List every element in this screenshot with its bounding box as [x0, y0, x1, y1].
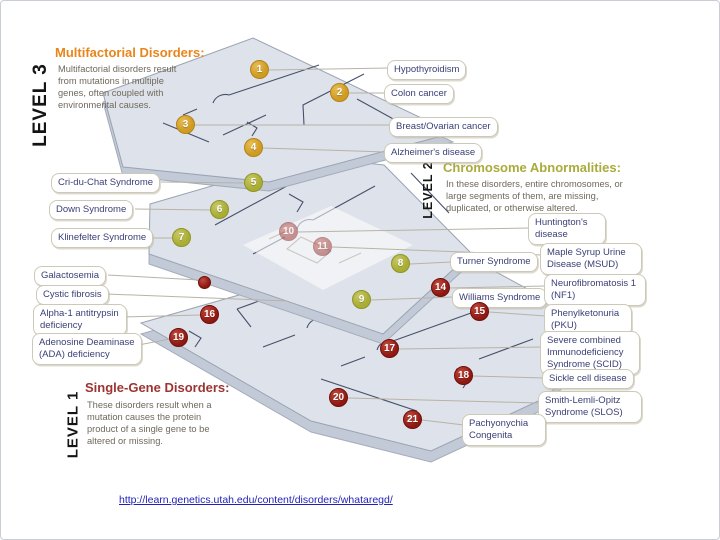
- label-nf1: Neurofibromatosis 1 (NF1): [544, 274, 646, 306]
- marker-18: 18: [454, 366, 473, 385]
- level3-vertical-label: LEVEL 3: [30, 45, 52, 165]
- label-cri-du-chat-syndrome: Cri-du-Chat Syndrome: [51, 173, 160, 193]
- label-alzheimers-disease: Alzheimer's disease: [384, 143, 482, 163]
- marker-14: 14: [431, 278, 450, 297]
- label-colon-cancer: Colon cancer: [384, 84, 454, 104]
- marker-15: 15: [470, 302, 489, 321]
- label-ada-deficiency: Adenosine Deaminase (ADA) deficiency: [32, 333, 142, 365]
- level3-heading: Multifactorial Disorders:: [55, 45, 205, 60]
- marker-3: 3: [176, 115, 195, 134]
- marker-8: 8: [391, 254, 410, 273]
- label-galactosemia: Galactosemia: [34, 266, 106, 286]
- marker-10: 10: [279, 222, 298, 241]
- level2-description: In these disorders, entire chromosomes, …: [446, 178, 644, 214]
- marker-partial: [198, 276, 211, 289]
- label-slos: Smith-Lemli-Opitz Syndrome (SLOS): [538, 391, 642, 423]
- label-alpha1-antitrypsin-deficiency: Alpha-1 antitrypsin deficiency: [33, 304, 127, 336]
- marker-9: 9: [352, 290, 371, 309]
- level1-heading: Single-Gene Disorders:: [85, 380, 229, 395]
- label-cystic-fibrosis: Cystic fibrosis: [36, 285, 109, 305]
- label-breast-ovarian-cancer: Breast/Ovarian cancer: [389, 117, 498, 137]
- level1-description: These disorders result when a mutation c…: [87, 399, 225, 447]
- label-sickle-cell-disease: Sickle cell disease: [542, 369, 634, 389]
- label-pachyonychia-congenita: Pachyonychia Congenita: [462, 414, 546, 446]
- label-huntingtons-disease: Huntington's disease: [528, 213, 606, 245]
- marker-21: 21: [403, 410, 422, 429]
- marker-19: 19: [169, 328, 188, 347]
- marker-11: 11: [313, 237, 332, 256]
- marker-6: 6: [210, 200, 229, 219]
- label-hypothyroidism: Hypothyroidism: [387, 60, 466, 80]
- marker-5: 5: [244, 173, 263, 192]
- label-msud: Maple Syrup Urine Disease (MSUD): [540, 243, 642, 275]
- label-klinefelter-syndrome: Klinefelter Syndrome: [51, 228, 153, 248]
- marker-7: 7: [172, 228, 191, 247]
- label-turner-syndrome: Turner Syndrome: [450, 252, 538, 272]
- marker-4: 4: [244, 138, 263, 157]
- marker-20: 20: [329, 388, 348, 407]
- level3-description: Multifactorial disorders result from mut…: [58, 63, 186, 111]
- level1-vertical-label: LEVEL 1: [65, 370, 82, 480]
- genetic-disorders-diagram: LEVEL 3 Multifactorial Disorders: Multif…: [0, 0, 720, 540]
- source-url-link[interactable]: http://learn.genetics.utah.edu/content/d…: [119, 494, 393, 506]
- marker-2: 2: [330, 83, 349, 102]
- marker-1: 1: [250, 60, 269, 79]
- label-williams-syndrome: Williams Syndrome: [452, 288, 547, 308]
- marker-16: 16: [200, 305, 219, 324]
- marker-17: 17: [380, 339, 399, 358]
- label-down-syndrome: Down Syndrome: [49, 200, 133, 220]
